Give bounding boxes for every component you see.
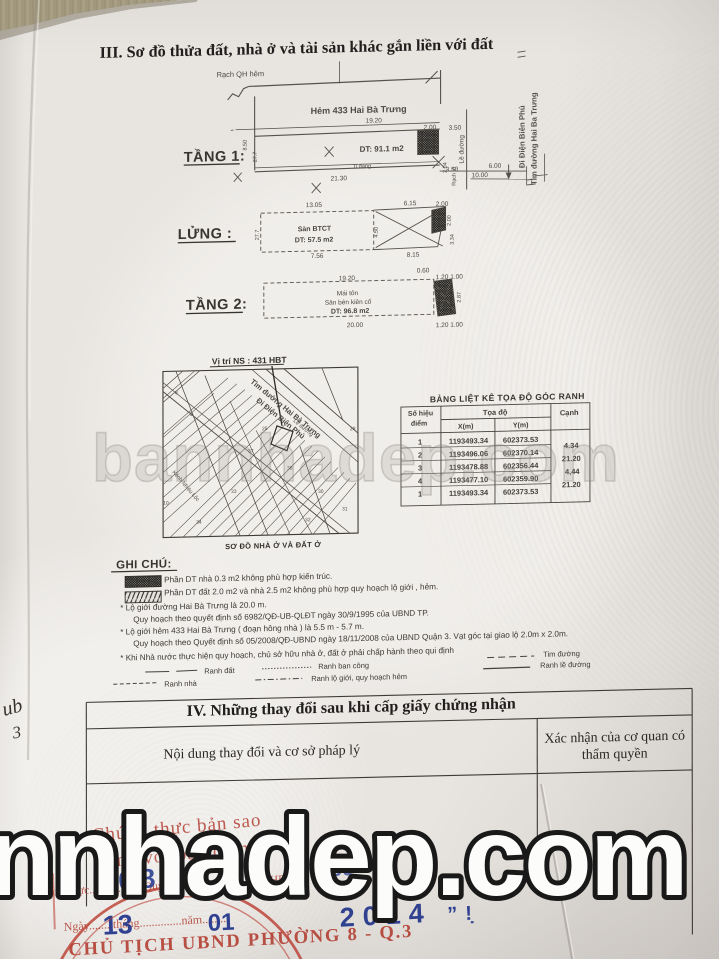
svg-text:nnhadep.com: nnhadep.com bbox=[0, 795, 687, 919]
